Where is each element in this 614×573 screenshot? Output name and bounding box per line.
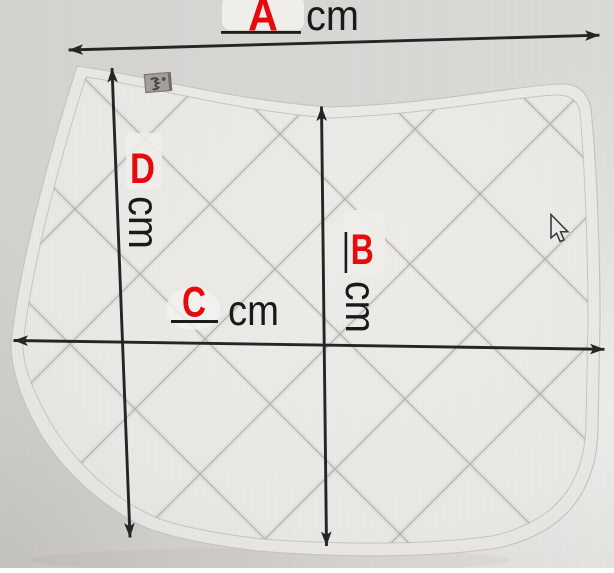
svg-text:cm: cm	[336, 281, 384, 333]
svg-text:D: D	[130, 145, 155, 193]
svg-text:cm: cm	[306, 0, 359, 40]
svg-text:B: B	[351, 226, 374, 274]
svg-text:A: A	[248, 0, 278, 41]
svg-text:C: C	[182, 278, 206, 326]
svg-text:cm: cm	[228, 287, 279, 335]
svg-text:cm: cm	[119, 196, 167, 249]
